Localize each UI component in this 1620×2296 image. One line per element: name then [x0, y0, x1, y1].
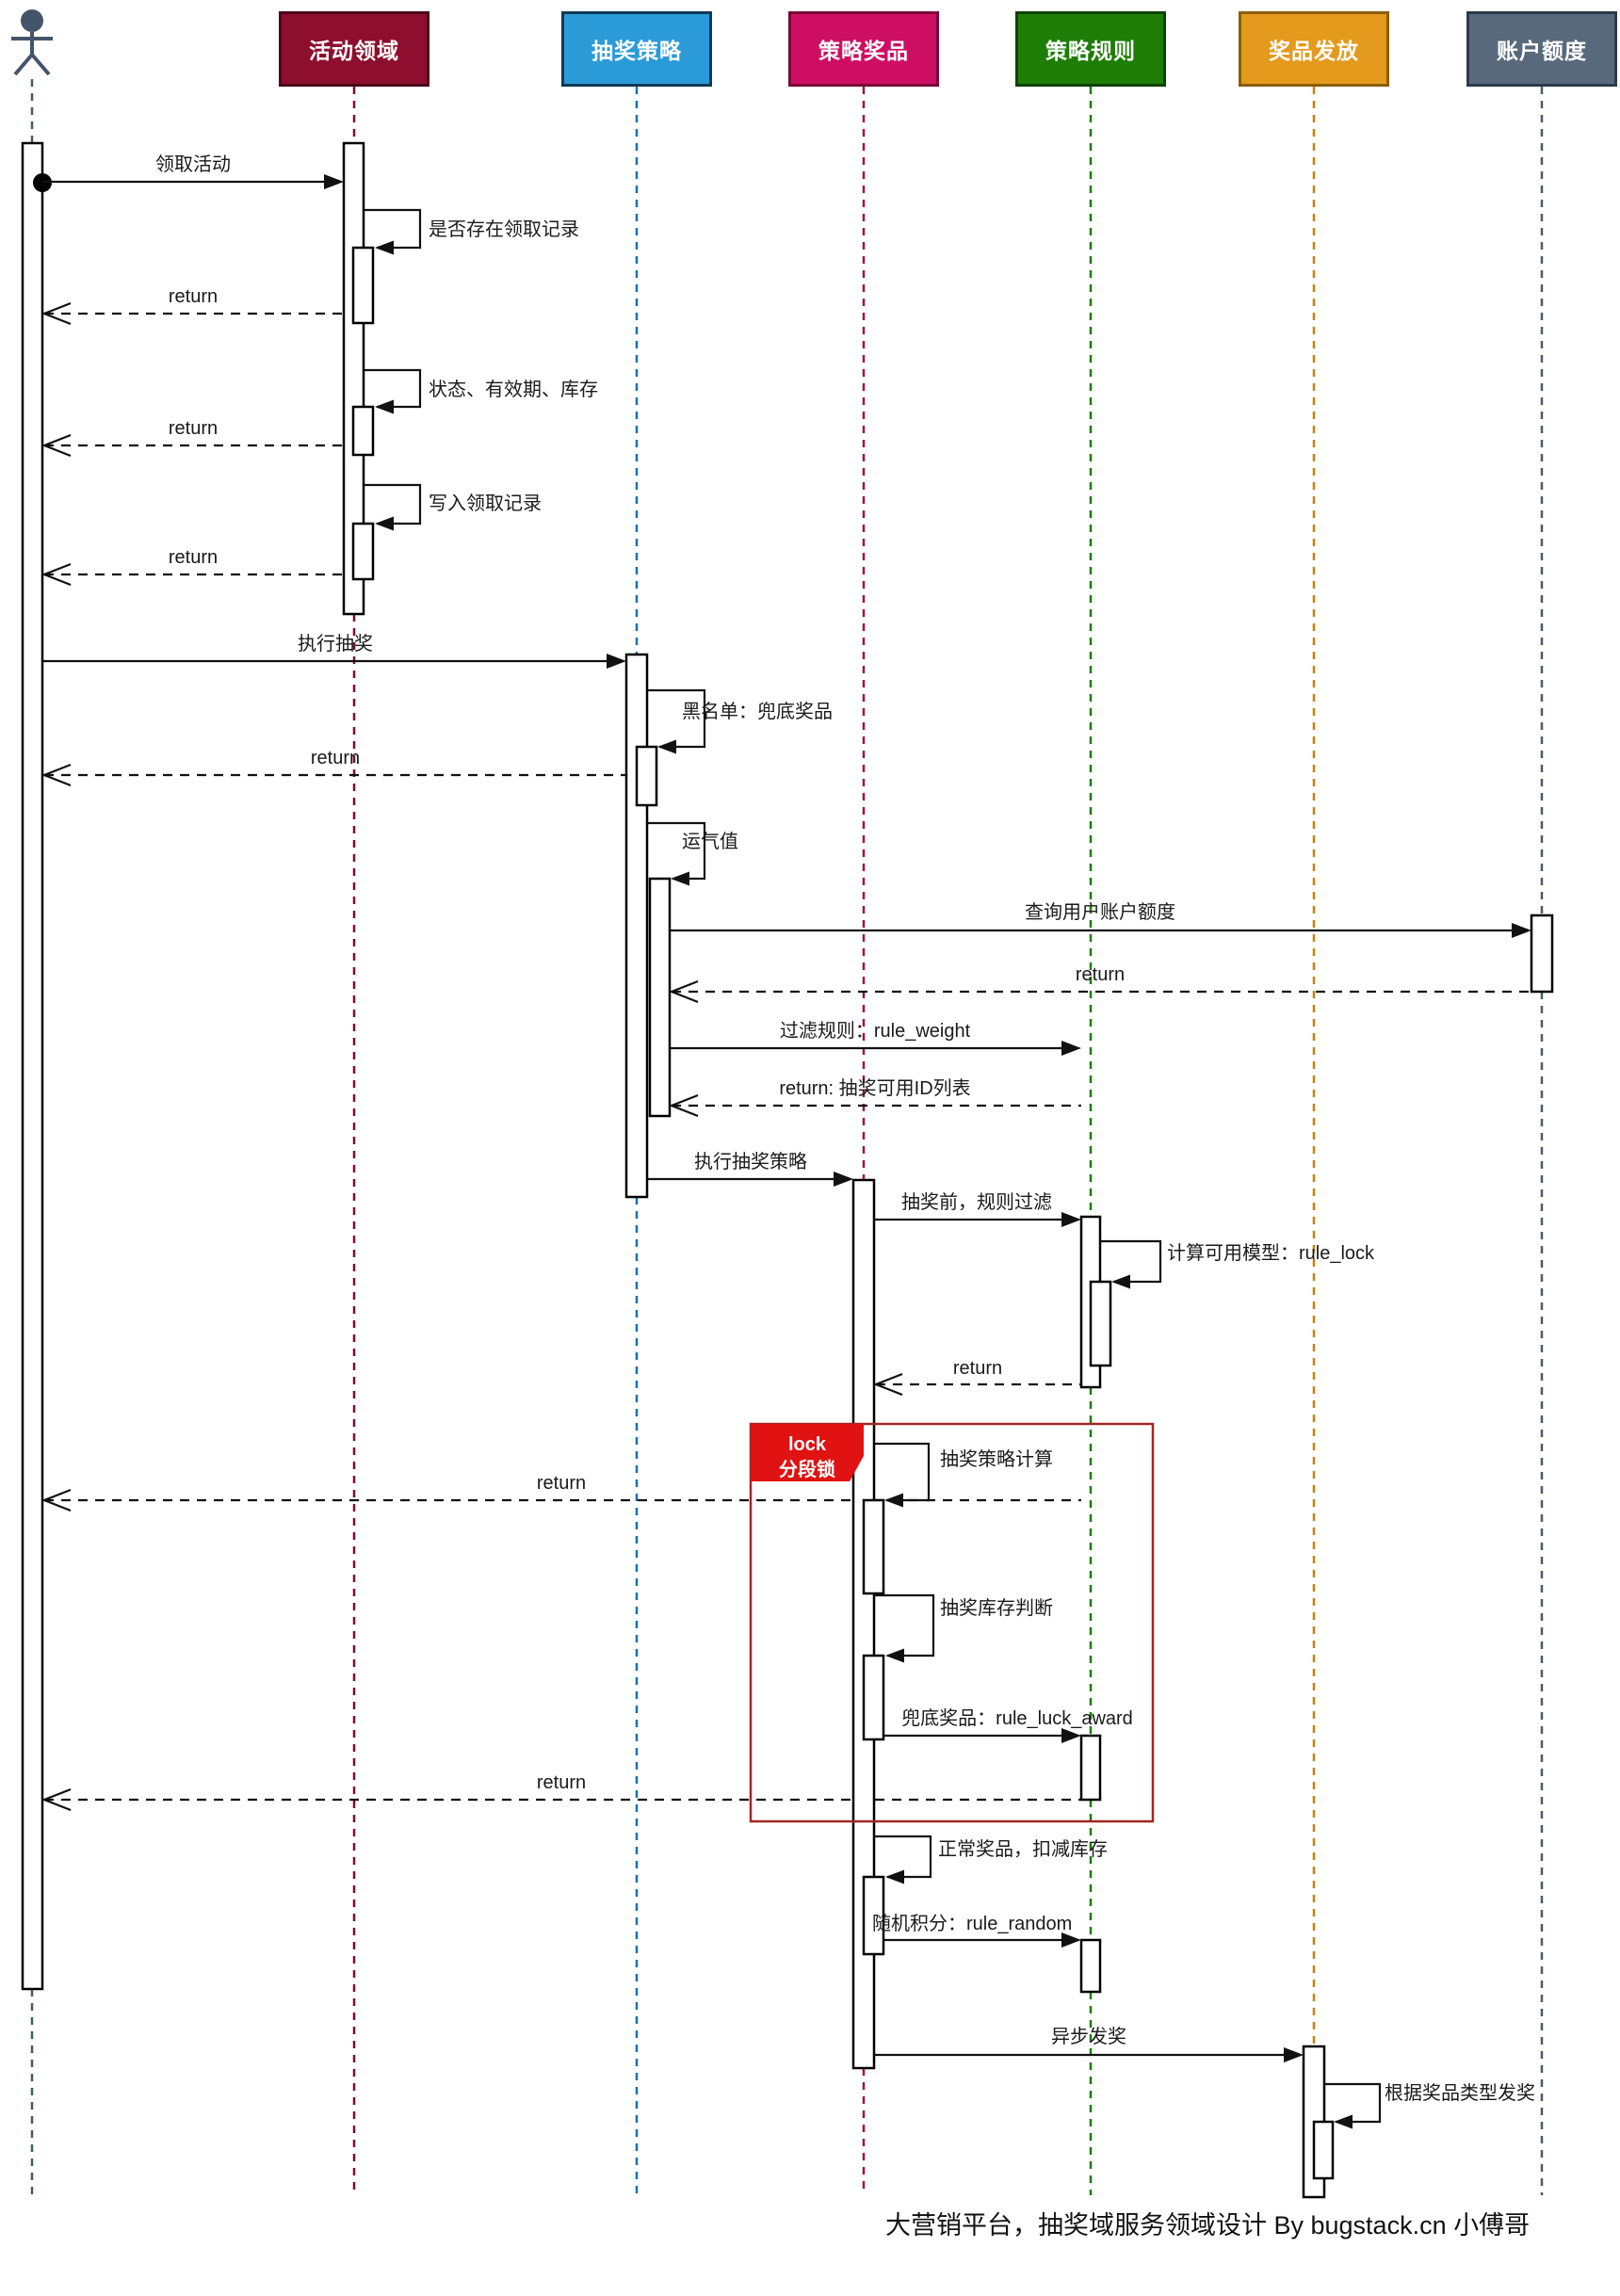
- label-random-points-rule-random: 随机积分：rule_random: [872, 1913, 1072, 1934]
- lock-group-label-line1: lock: [788, 1434, 827, 1455]
- participant-label-activity-domain: 活动领域: [309, 33, 399, 65]
- participant-label-draw-strategy: 抽奖策略: [591, 33, 682, 65]
- long-return-arrows: [44, 1490, 1081, 1810]
- label-draw-stock-check: 抽奖库存判断: [940, 1597, 1053, 1619]
- participant-label-award-send: 奖品发放: [1269, 33, 1359, 65]
- participant-box-draw-strategy: 抽奖策略: [561, 11, 712, 87]
- activation-activity-nested-3: [353, 524, 373, 579]
- arrow-filter-rule-weight: [670, 1041, 1081, 1056]
- diagram-canvas: lock 分段锁 领取活动 是否存在领取记录 return 状态、有效期、库存 …: [0, 0, 1620, 2296]
- diagram-footer: 大营销平台，抽奖域服务领域设计 By bugstack.cn 小傅哥: [885, 2211, 1530, 2239]
- activation-strategy-nested-blacklist: [637, 747, 656, 805]
- label-return-4: return: [311, 748, 360, 768]
- label-pre-draw-rule-filter: 抽奖前，规则过滤: [901, 1191, 1052, 1213]
- label-claim-activity: 领取活动: [155, 154, 231, 175]
- activation-user: [23, 143, 42, 1989]
- arrow-execute-draw: [42, 654, 626, 669]
- participant-label-strategy-rule: 策略规则: [1045, 33, 1136, 65]
- participant-box-activity-domain: 活动领域: [279, 11, 429, 87]
- activation-activity-nested-2: [353, 407, 373, 455]
- lifelines: [32, 79, 1542, 2195]
- actor-icon: [11, 9, 53, 74]
- label-async-send-award: 异步发奖: [1051, 2026, 1126, 2047]
- label-return-1: return: [169, 286, 218, 307]
- activation-send-nested: [1314, 2122, 1333, 2178]
- label-query-account-quota: 查询用户账户额度: [1025, 901, 1175, 923]
- label-return-5: return: [1076, 964, 1125, 985]
- arrow-random-points-rule-random: [883, 1932, 1081, 1948]
- label-send-by-award-type: 根据奖品类型发奖: [1385, 2082, 1535, 2104]
- label-return-3: return: [169, 547, 218, 568]
- activation-rule-2: [1081, 1736, 1100, 1800]
- participant-label-strategy-award: 策略奖品: [818, 33, 909, 65]
- participant-box-strategy-award: 策略奖品: [788, 11, 939, 87]
- label-draw-strategy-compute: 抽奖策略计算: [940, 1448, 1053, 1470]
- activation-rule-3: [1081, 1940, 1100, 1992]
- participant-box-account-quota: 账户额度: [1466, 11, 1617, 87]
- lock-group-label-line2: 分段锁: [779, 1458, 835, 1480]
- label-blacklist-fallback: 黑名单：兜底奖品: [682, 701, 833, 722]
- label-compute-model-rule-lock: 计算可用模型：rule_lock: [1167, 1242, 1375, 1264]
- label-filter-rule-weight: 过滤规则：rule_weight: [780, 1020, 971, 1042]
- arrow-async-send-award: [874, 2047, 1304, 2062]
- participant-box-strategy-rule: 策略规则: [1015, 11, 1166, 87]
- arrow-claim-activity: [42, 174, 344, 189]
- label-execute-draw: 执行抽奖: [298, 633, 373, 655]
- label-execute-draw-strategy: 执行抽奖策略: [694, 1151, 807, 1172]
- activation-award-nested-stock: [864, 1656, 883, 1739]
- activation-strategy-nested-luck: [650, 879, 670, 1116]
- label-normal-award-deduct: 正常奖品，扣减库存: [938, 1838, 1108, 1860]
- label-return-available-ids: return: 抽奖可用ID列表: [779, 1077, 970, 1099]
- arrow-execute-draw-strategy: [647, 1172, 853, 1187]
- self-draw-strategy-compute: [874, 1444, 929, 1508]
- sequence-diagram: lock 分段锁 领取活动 是否存在领取记录 return 状态、有效期、库存 …: [0, 0, 1620, 2296]
- activation-award-nested-compute: [864, 1500, 883, 1593]
- self-draw-stock-check: [874, 1595, 933, 1663]
- label-return-2: return: [169, 418, 218, 439]
- participant-label-account-quota: 账户额度: [1497, 33, 1587, 65]
- arrow-query-account-quota: [670, 923, 1531, 938]
- activation-activity-nested-1: [353, 248, 373, 323]
- label-write-claim-record: 写入领取记录: [429, 493, 542, 514]
- label-return-7: return: [537, 1473, 586, 1494]
- label-return-6: return: [953, 1358, 1002, 1379]
- call-arrows: [42, 174, 1531, 2062]
- label-check-claim-record: 是否存在领取记录: [429, 218, 579, 240]
- label-luck-value: 运气值: [682, 831, 738, 852]
- activation-strategy-main: [626, 655, 647, 1197]
- activation-rule-nested-lock: [1091, 1282, 1110, 1366]
- participant-box-award-send: 奖品发放: [1239, 11, 1389, 87]
- arrow-pre-draw-rule-filter: [874, 1212, 1081, 1227]
- label-return-8: return: [537, 1772, 586, 1793]
- activation-account: [1531, 915, 1552, 992]
- label-status-validity-stock: 状态、有效期、库存: [429, 379, 598, 400]
- arrow-fallback-rule-luck-award: [883, 1728, 1081, 1743]
- return-arrows: [44, 303, 1531, 1395]
- label-fallback-rule-luck-award: 兜底奖品：rule_luck_award: [901, 1707, 1133, 1729]
